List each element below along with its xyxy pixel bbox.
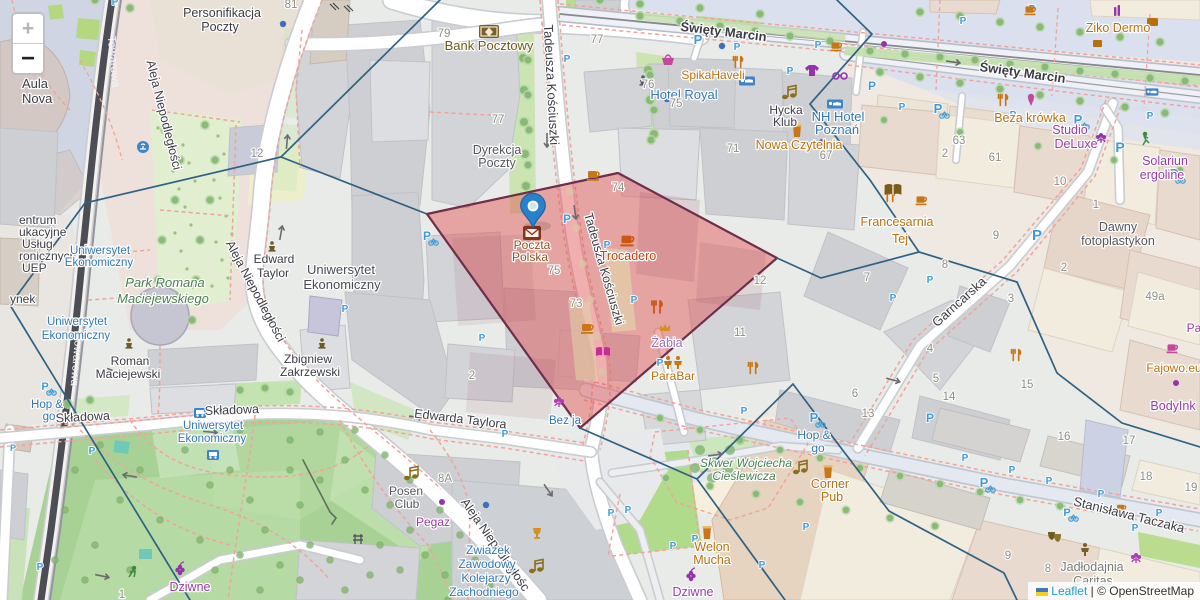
svg-text:Składowa: Składowa	[205, 402, 260, 418]
svg-text:Par: Par	[1187, 321, 1200, 335]
svg-text:Roman: Roman	[111, 354, 150, 368]
svg-text:P: P	[734, 42, 741, 53]
svg-text:go: go	[811, 441, 825, 455]
svg-text:11: 11	[734, 327, 746, 339]
svg-text:4: 4	[927, 343, 934, 355]
svg-text:5: 5	[933, 373, 939, 385]
svg-text:Park Romana: Park Romana	[125, 275, 204, 290]
svg-text:73: 73	[570, 298, 583, 310]
svg-text:Nova: Nova	[22, 91, 53, 106]
svg-text:Club: Club	[395, 497, 420, 511]
svg-text:2: 2	[1061, 262, 1067, 274]
svg-text:BodyInk: BodyInk	[1150, 399, 1196, 413]
svg-text:P: P	[112, 0, 119, 8]
svg-text:ergoline: ergoline	[1140, 168, 1185, 182]
svg-text:P: P	[787, 66, 794, 77]
svg-text:13: 13	[862, 408, 875, 420]
svg-text:P: P	[960, 16, 967, 27]
svg-text:7: 7	[864, 272, 870, 284]
svg-text:1: 1	[1093, 199, 1099, 211]
svg-text:Mucha: Mucha	[693, 553, 731, 567]
svg-text:P: P	[342, 304, 349, 315]
svg-text:Dziwne: Dziwne	[170, 580, 211, 594]
svg-text:Kolejarzy: Kolejarzy	[461, 571, 510, 585]
svg-text:Dyrekcja: Dyrekcja	[473, 143, 522, 157]
svg-text:Uniwersytet: Uniwersytet	[70, 245, 131, 257]
svg-text:P: P	[657, 358, 664, 369]
svg-text:P: P	[927, 275, 934, 286]
svg-text:SpikaHaveli: SpikaHaveli	[681, 68, 744, 82]
svg-text:6: 6	[852, 388, 858, 400]
svg-text:63: 63	[953, 135, 966, 147]
svg-text:DeLuxe: DeLuxe	[1054, 137, 1097, 151]
svg-text:Cieślewicza: Cieślewicza	[712, 469, 776, 483]
svg-text:P: P	[625, 505, 632, 516]
svg-text:Francesarnia: Francesarnia	[861, 215, 934, 229]
svg-text:Jadłodajnia: Jadłodajnia	[1060, 560, 1123, 574]
svg-text:Ekonomiczny: Ekonomiczny	[65, 257, 134, 269]
svg-text:8: 8	[1045, 563, 1051, 575]
svg-text:ynek: ynek	[10, 292, 36, 306]
svg-text:P: P	[759, 560, 766, 571]
svg-text:15: 15	[1021, 379, 1034, 391]
svg-text:Hotel Royal: Hotel Royal	[650, 87, 717, 102]
svg-text:81: 81	[285, 0, 298, 11]
svg-text:2: 2	[942, 148, 948, 160]
svg-text:P: P	[868, 79, 876, 93]
svg-text:Ekonomiczny: Ekonomiczny	[42, 330, 111, 342]
svg-text:8: 8	[942, 259, 948, 271]
svg-text:Pub: Pub	[821, 490, 843, 504]
svg-text:16: 16	[1058, 431, 1071, 443]
svg-text:Pegaz: Pegaz	[416, 515, 450, 529]
svg-text:Dziwne: Dziwne	[673, 585, 714, 599]
svg-text:Hop &: Hop &	[31, 399, 63, 411]
svg-text:Zbigniew: Zbigniew	[284, 352, 332, 366]
svg-text:Ekonomiczny: Ekonomiczny	[303, 277, 381, 292]
svg-text:Uniwersytet: Uniwersytet	[183, 420, 244, 432]
svg-text:Ekonomiczny: Ekonomiczny	[178, 433, 247, 445]
svg-text:P: P	[631, 295, 638, 306]
svg-text:19: 19	[1185, 482, 1198, 494]
svg-text:12: 12	[251, 148, 264, 160]
svg-text:P: P	[962, 453, 969, 464]
svg-text:Zawodowy: Zawodowy	[458, 557, 515, 571]
svg-text:71: 71	[727, 143, 740, 155]
svg-text:P: P	[608, 508, 615, 519]
svg-text:12: 12	[754, 275, 767, 287]
svg-text:49a: 49a	[1145, 291, 1165, 303]
svg-text:P: P	[563, 212, 571, 226]
svg-text:P: P	[37, 562, 44, 573]
svg-text:P: P	[564, 54, 571, 65]
svg-text:ParaBar: ParaBar	[651, 369, 695, 383]
svg-text:2: 2	[469, 370, 475, 382]
svg-text:Fajowo.eu: Fajowo.eu	[1146, 361, 1200, 375]
svg-text:Składowa: Składowa	[55, 409, 110, 426]
svg-text:P: P	[1132, 523, 1139, 534]
svg-text:Posen: Posen	[389, 484, 423, 498]
svg-text:Tej: Tej	[892, 232, 908, 246]
svg-text:Trocadero: Trocadero	[600, 249, 657, 263]
svg-text:P: P	[1009, 465, 1016, 476]
svg-text:P: P	[926, 411, 934, 425]
svg-text:75: 75	[670, 98, 683, 110]
svg-text:P: P	[1115, 139, 1124, 155]
svg-text:go: go	[43, 411, 56, 423]
svg-text:1: 1	[119, 589, 125, 600]
svg-text:P: P	[10, 443, 16, 453]
svg-text:Polska: Polska	[512, 250, 548, 264]
svg-text:Edward: Edward	[254, 252, 295, 266]
svg-text:3: 3	[1008, 293, 1014, 305]
svg-text:Poczty: Poczty	[478, 156, 516, 170]
svg-text:74: 74	[612, 182, 625, 194]
svg-text:76: 76	[642, 79, 655, 91]
svg-text:61: 61	[989, 152, 1002, 164]
svg-text:18: 18	[1140, 471, 1153, 483]
svg-text:Poczty: Poczty	[201, 20, 239, 34]
svg-text:P: P	[89, 446, 96, 457]
svg-text:67: 67	[820, 150, 833, 162]
svg-text:75: 75	[548, 265, 561, 277]
svg-text:17: 17	[1123, 435, 1136, 447]
svg-text:P: P	[670, 541, 677, 552]
svg-text:Klub: Klub	[773, 115, 797, 129]
svg-text:9: 9	[993, 230, 999, 242]
svg-text:Maciejewski: Maciejewski	[96, 367, 161, 381]
svg-text:P: P	[815, 40, 822, 51]
svg-text:P: P	[1032, 227, 1042, 244]
svg-text:P: P	[1147, 111, 1154, 122]
svg-text:10: 10	[1054, 176, 1067, 188]
svg-text:Dawny: Dawny	[1099, 220, 1138, 234]
svg-text:9: 9	[1005, 550, 1011, 562]
svg-text:P: P	[890, 293, 897, 304]
svg-text:Taylor: Taylor	[257, 266, 289, 280]
svg-text:Personifikacja: Personifikacja	[183, 6, 261, 20]
svg-text:Welon: Welon	[694, 540, 729, 554]
svg-text:Zachodniego: Zachodniego	[449, 585, 519, 599]
svg-text:Skwer Wojciecha: Skwer Wojciecha	[700, 456, 792, 470]
svg-text:Bez ja: Bez ja	[549, 415, 582, 427]
svg-text:P: P	[1046, 476, 1053, 487]
svg-text:Uniwersytet: Uniwersytet	[47, 316, 108, 328]
svg-text:Zakrzewski: Zakrzewski	[280, 365, 340, 379]
svg-text:77: 77	[591, 34, 604, 46]
svg-text:Solariun: Solariun	[1142, 154, 1188, 168]
svg-text:Uniwersytet: Uniwersytet	[307, 262, 375, 277]
svg-text:Studio: Studio	[1052, 123, 1087, 137]
svg-text:Bank Pocztowy: Bank Pocztowy	[445, 38, 534, 53]
svg-text:77: 77	[492, 114, 505, 126]
svg-text:Żabia: Żabia	[651, 336, 682, 350]
svg-text:Hop &: Hop &	[797, 428, 830, 442]
svg-text:P: P	[899, 102, 906, 113]
svg-text:Ziko Dermo: Ziko Dermo	[1086, 21, 1151, 35]
svg-text:14: 14	[943, 391, 956, 403]
svg-text:8A: 8A	[438, 473, 452, 485]
svg-text:Zwiazek: Zwiazek	[466, 543, 511, 557]
svg-text:fotoplastykon: fotoplastykon	[1081, 234, 1155, 248]
svg-text:P: P	[741, 406, 748, 417]
svg-text:P: P	[479, 333, 486, 344]
svg-text:Corner: Corner	[811, 477, 849, 491]
svg-text:Maciejewskiego: Maciejewskiego	[117, 291, 209, 306]
svg-text:Aula: Aula	[22, 76, 49, 91]
svg-text:79: 79	[438, 28, 451, 40]
svg-text:UEP: UEP	[22, 261, 47, 275]
svg-text:Poznań: Poznań	[815, 122, 859, 137]
svg-text:P: P	[803, 522, 810, 533]
